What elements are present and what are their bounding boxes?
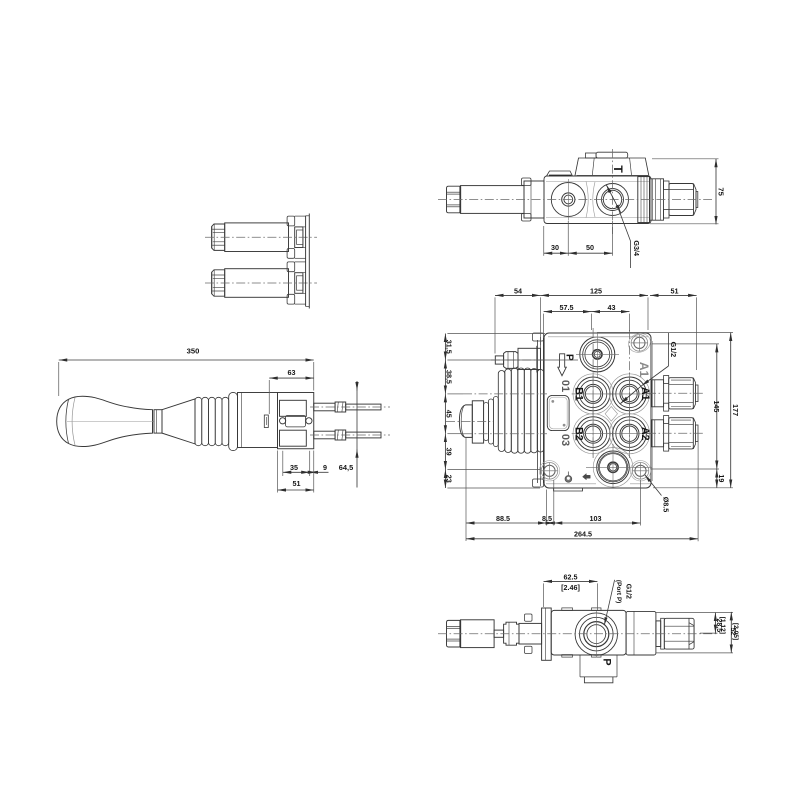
svg-text:64,5: 64,5 [339,463,353,472]
svg-text:30: 30 [551,243,559,252]
svg-text:(Port P): (Port P) [615,580,622,603]
svg-text:01: 01 [559,380,571,392]
svg-text:G1/2: G1/2 [624,584,631,599]
svg-text:38,5: 38,5 [445,370,454,384]
svg-text:54: 54 [514,287,522,296]
svg-text:31,5: 31,5 [445,340,454,354]
svg-text:A1: A1 [639,387,651,401]
svg-text:35: 35 [290,463,298,472]
svg-text:125: 125 [590,287,602,296]
svg-text:57.5: 57.5 [560,303,574,312]
svg-text:177: 177 [731,404,740,416]
svg-text:T: T [611,165,625,173]
svg-text:G1/2: G1/2 [669,342,678,358]
svg-text:23: 23 [445,475,454,483]
svg-text:39: 39 [445,448,454,456]
svg-text:103: 103 [590,514,602,523]
svg-text:P: P [600,658,612,665]
svg-text:A2: A2 [639,427,651,441]
svg-text:Ø8.5: Ø8.5 [662,497,671,513]
svg-text:75: 75 [716,187,725,196]
svg-text:[1.12]: [1.12] [719,617,726,634]
svg-text:[2.46]: [2.46] [561,583,580,592]
svg-text:45: 45 [445,410,454,418]
svg-text:264.5: 264.5 [574,530,592,539]
svg-text:B2: B2 [572,427,584,441]
svg-text:350: 350 [187,347,200,356]
svg-text:19: 19 [717,474,726,482]
svg-text:43: 43 [608,303,616,312]
svg-text:63: 63 [288,368,296,377]
svg-text:9: 9 [323,463,327,472]
svg-text:G3/4: G3/4 [632,240,641,256]
svg-text:51: 51 [671,287,679,296]
svg-text:88.5: 88.5 [496,514,510,523]
svg-text:8.5: 8.5 [542,514,552,523]
svg-text:A1: A1 [637,362,651,378]
svg-text:50: 50 [586,243,594,252]
svg-text:B1: B1 [572,387,584,401]
svg-text:62.5: 62.5 [564,573,578,582]
svg-text:145: 145 [712,400,721,412]
svg-text:[2.05]: [2.05] [732,623,739,640]
svg-text:51: 51 [293,479,301,488]
svg-text:03: 03 [559,434,571,446]
